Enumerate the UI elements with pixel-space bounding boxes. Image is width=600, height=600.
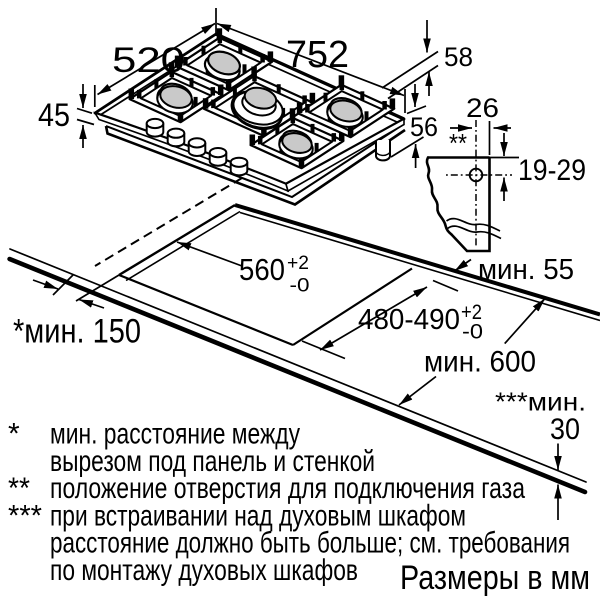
svg-text:+2: +2	[287, 252, 309, 274]
svg-text:45: 45	[38, 97, 70, 133]
svg-text:19-29: 19-29	[518, 154, 586, 187]
svg-text:56: 56	[410, 112, 438, 142]
svg-text:-0: -0	[462, 321, 483, 344]
svg-text:752: 752	[286, 34, 349, 76]
svg-text:мин. 55: мин. 55	[478, 254, 574, 286]
svg-text:480-490: 480-490	[358, 304, 460, 336]
svg-text:560: 560	[239, 252, 285, 287]
svg-text:30: 30	[550, 413, 580, 446]
svg-text:*: *	[8, 418, 20, 451]
svg-text:мин. 600: мин. 600	[424, 346, 536, 379]
svg-text:-0: -0	[290, 275, 310, 297]
svg-text:Размеры в мм: Размеры в мм	[400, 559, 590, 597]
svg-text:26: 26	[466, 93, 499, 123]
svg-text:по монтажу духовых шкафов: по монтажу духовых шкафов	[50, 554, 358, 587]
svg-text:520: 520	[112, 41, 185, 80]
svg-text:*мин. 150: *мин. 150	[13, 313, 141, 351]
svg-text:58: 58	[444, 42, 473, 72]
svg-text:***мин.: ***мин.	[495, 387, 586, 417]
svg-text:***: ***	[8, 499, 42, 532]
svg-text:**: **	[449, 128, 467, 158]
